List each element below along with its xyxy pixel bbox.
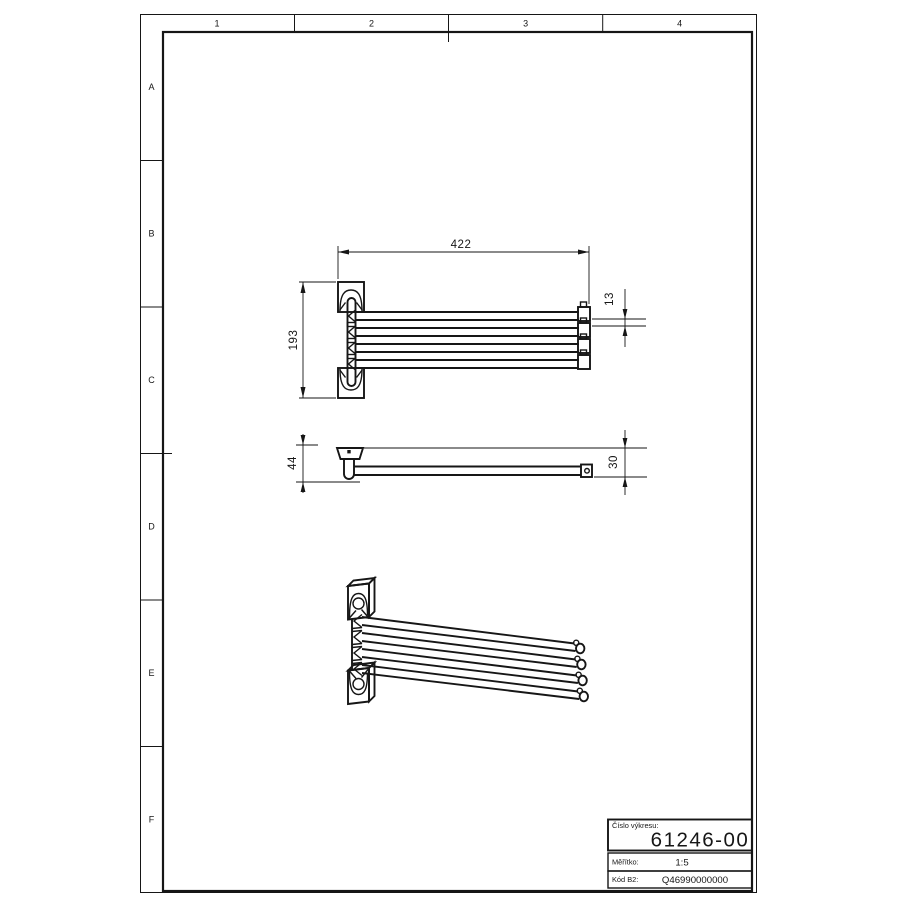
title-block: Číslo výkresu: 61246-00 Měřítko: 1:5 Kód…	[608, 820, 752, 889]
zone-column-label: 3	[523, 19, 528, 29]
zone-row-label: E	[148, 668, 154, 678]
dimension-arm: 13	[592, 289, 646, 347]
towel-arms-front	[355, 302, 590, 369]
towel-arms-iso	[362, 617, 588, 701]
code-value: Q46990000000	[662, 875, 728, 886]
arm-end-cap	[578, 339, 590, 353]
zone-row-label: A	[148, 82, 154, 92]
arm-end-cap	[578, 323, 590, 337]
dimension-width: 422	[338, 239, 589, 304]
pivot-post-front	[348, 310, 356, 370]
zone-column-label: 2	[369, 19, 374, 29]
drawing-sheet: 1 2 3 4 A B C D E F	[0, 0, 900, 900]
zone-row-label: B	[148, 229, 154, 239]
pivot-post-iso	[352, 615, 362, 676]
pivot-post-top-view	[344, 459, 354, 479]
wall-plate-bottom	[338, 368, 364, 398]
inner-frame	[163, 32, 752, 891]
front-view: 422 193 13	[288, 239, 646, 398]
wall-plate-top-iso	[348, 578, 375, 620]
zone-row-label: D	[148, 522, 155, 532]
zone-row-label: C	[148, 375, 155, 385]
zone-column-label: 1	[214, 19, 219, 29]
dim-193-label: 193	[288, 330, 300, 351]
arm-end-cap	[578, 355, 590, 369]
drawing-number-value: 61246-00	[651, 829, 750, 852]
zone-row-label: F	[149, 815, 155, 825]
outer-border	[141, 15, 757, 893]
scale-value: 1:5	[675, 858, 688, 869]
sheet-frame: 1 2 3 4 A B C D E F	[141, 15, 757, 893]
dimension-depth: 44	[287, 434, 360, 493]
technical-drawing: 1 2 3 4 A B C D E F	[0, 0, 900, 900]
top-view: 44 30	[287, 430, 647, 495]
dim-30-label: 30	[608, 455, 620, 469]
wall-plate-top	[338, 282, 364, 312]
scale-label: Měřítko:	[612, 858, 639, 867]
isometric-view	[348, 578, 588, 704]
dim-44-label: 44	[287, 456, 299, 470]
dimension-height: 193	[288, 282, 336, 398]
dim-422-label: 422	[451, 239, 472, 251]
zone-column-label: 4	[677, 19, 682, 29]
mount-plate-top-view	[337, 448, 363, 459]
dimension-bar: 30	[364, 430, 647, 495]
bar-end-cap-top-view	[581, 465, 592, 478]
arm-end-cap	[578, 307, 590, 321]
code-label: Kód B2:	[612, 875, 638, 884]
end-cap-hole	[585, 469, 590, 474]
dim-13-label: 13	[604, 292, 616, 306]
